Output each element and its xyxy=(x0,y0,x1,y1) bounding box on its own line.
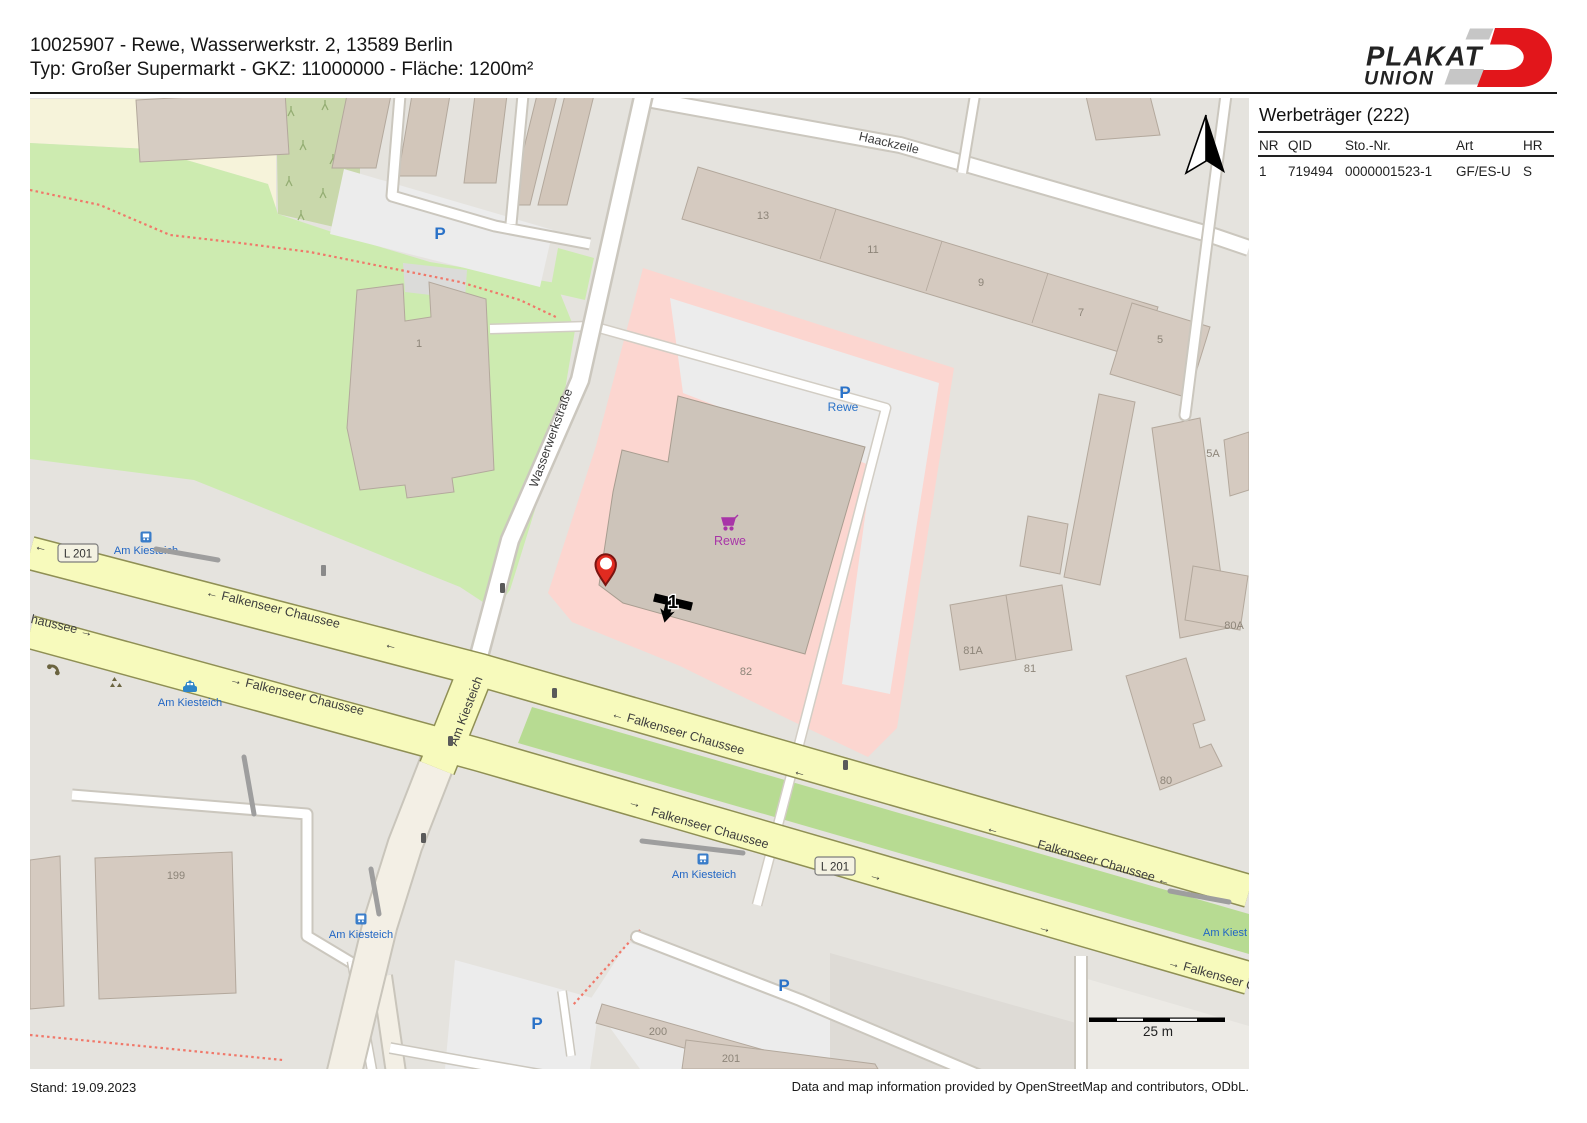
svg-text:25 m: 25 m xyxy=(1143,1024,1173,1039)
svg-text:L 201: L 201 xyxy=(821,862,849,874)
svg-text:5A: 5A xyxy=(1206,448,1220,460)
svg-text:Rewe: Rewe xyxy=(714,534,746,548)
svg-text:P: P xyxy=(434,224,445,243)
svg-text:1: 1 xyxy=(416,338,422,350)
svg-text:11: 11 xyxy=(867,244,878,256)
svg-text:199: 199 xyxy=(167,870,185,882)
svg-text:13: 13 xyxy=(757,210,769,222)
svg-text:82: 82 xyxy=(740,666,752,678)
svg-text:1: 1 xyxy=(668,592,678,612)
svg-text:Am Kiest: Am Kiest xyxy=(1203,927,1247,939)
svg-text:7: 7 xyxy=(1078,307,1084,319)
svg-text:200: 200 xyxy=(649,1026,667,1038)
svg-text:80: 80 xyxy=(1160,775,1172,787)
svg-text:Am Kiesteich: Am Kiesteich xyxy=(158,697,222,709)
svg-text:9: 9 xyxy=(978,277,984,289)
svg-text:Am Kiesteich: Am Kiesteich xyxy=(672,869,736,881)
svg-text:Am Kiesteich: Am Kiesteich xyxy=(329,929,393,941)
svg-text:201: 201 xyxy=(722,1053,740,1065)
svg-text:81A: 81A xyxy=(963,645,983,657)
svg-text:L 201: L 201 xyxy=(64,549,92,561)
svg-text:81: 81 xyxy=(1024,663,1036,675)
svg-text:Rewe: Rewe xyxy=(828,400,859,414)
svg-text:UNION: UNION xyxy=(1364,68,1434,90)
svg-text:80A: 80A xyxy=(1224,620,1244,632)
svg-text:5: 5 xyxy=(1157,334,1163,346)
svg-text:P: P xyxy=(778,976,789,995)
svg-text:P: P xyxy=(531,1014,542,1033)
